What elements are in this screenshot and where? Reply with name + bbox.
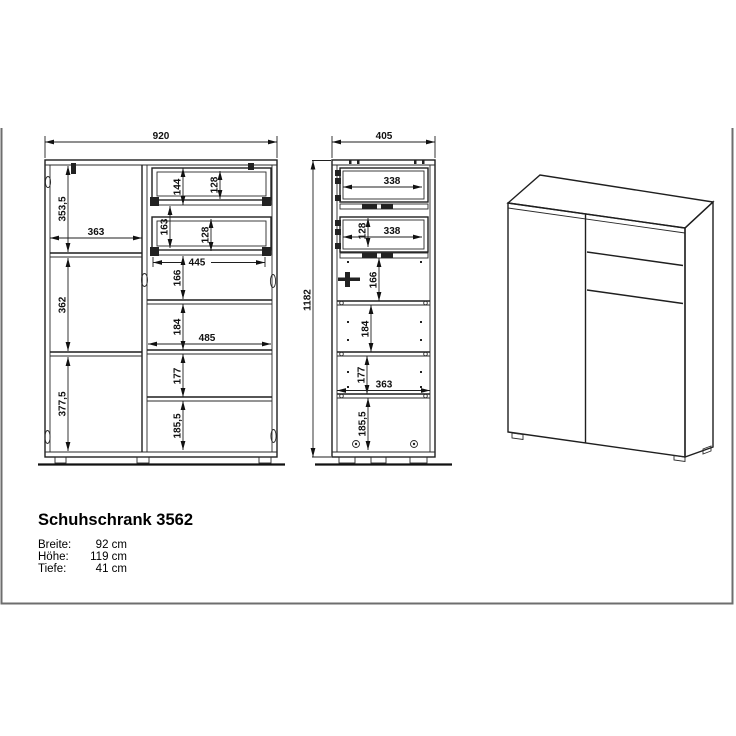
technical-drawing: 920 353,5 363 362 377,5 144 128 163 xyxy=(0,0,736,736)
screw-icon xyxy=(353,441,418,448)
dim-label: 177 xyxy=(173,367,184,384)
dim-side-shelf-gap-2: 177 xyxy=(357,356,368,394)
dim-side-overall-height: 1182 xyxy=(303,161,332,458)
dim-label: 1182 xyxy=(303,289,314,311)
dim-front-left-width: 363 xyxy=(50,227,142,238)
dim-label: 353,5 xyxy=(58,196,69,221)
dim-label: 485 xyxy=(199,333,216,344)
dim-front-shelf-gap-2: 177 xyxy=(173,354,184,397)
dim-side-drawer2-depth: 338 xyxy=(343,226,422,237)
dim-label: 184 xyxy=(361,320,372,337)
dim-side-below-drawers: 166 xyxy=(369,258,380,301)
dim-label: 128 xyxy=(201,226,212,243)
spec-list: Breite:92 cm Höhe:119 cm Tiefe:41 cm xyxy=(38,539,193,576)
dim-front-right-width: 485 xyxy=(148,333,271,344)
front-view: 920 353,5 363 362 377,5 144 128 163 xyxy=(38,131,285,465)
dim-front-shelf-gap-1: 184 xyxy=(173,304,184,350)
dim-front-left-top: 353,5 xyxy=(58,166,69,252)
spec-label: Höhe: xyxy=(38,551,85,563)
perspective-view xyxy=(508,175,713,462)
drawer-2-side xyxy=(335,217,428,258)
spec-row-height: Höhe:119 cm xyxy=(38,551,193,563)
dim-front-drawer2-height: 163 xyxy=(160,206,171,248)
dim-label: 405 xyxy=(376,131,393,142)
dim-side-drawer1-depth: 338 xyxy=(343,176,422,187)
bracket-icon xyxy=(71,163,76,174)
bracket-icon xyxy=(248,163,254,170)
product-title: Schuhschrank 3562 xyxy=(38,511,193,530)
dim-label: 177 xyxy=(357,366,368,383)
dim-label: 166 xyxy=(369,271,380,288)
dim-front-left-bottom: 377,5 xyxy=(58,357,69,451)
dim-label: 185,5 xyxy=(358,411,369,436)
handle-icon xyxy=(270,275,275,288)
spec-label: Tiefe: xyxy=(38,563,85,575)
dim-label: 184 xyxy=(173,318,184,335)
side-view: 405 1182 338 128 338 166 184 xyxy=(303,131,453,465)
spec-value: 119 cm xyxy=(85,551,127,563)
dim-label: 363 xyxy=(88,227,105,238)
dim-label: 920 xyxy=(153,131,170,142)
dim-label: 163 xyxy=(160,218,171,235)
dim-label: 144 xyxy=(173,178,184,195)
dim-side-drawer2-inner: 128 xyxy=(358,218,369,247)
handle-icon xyxy=(338,272,360,287)
dim-front-shelf-gap-3: 185,5 xyxy=(173,401,184,450)
spec-value: 41 cm xyxy=(85,563,127,575)
dim-side-overall-depth: 405 xyxy=(332,131,435,158)
title-block: Schuhschrank 3562 Breite:92 cm Höhe:119 … xyxy=(38,511,193,576)
dim-label: 166 xyxy=(173,269,184,286)
dim-front-left-mid: 362 xyxy=(58,258,69,351)
dim-front-drawer1-inner: 128 xyxy=(210,171,221,199)
spec-label: Breite: xyxy=(38,539,85,551)
dim-front-drawers-width: 445 xyxy=(153,256,265,269)
dim-label: 338 xyxy=(384,176,401,187)
dim-label: 338 xyxy=(384,226,401,237)
dim-label: 128 xyxy=(210,176,221,193)
drawer-1-side xyxy=(335,168,428,209)
dim-label: 362 xyxy=(58,296,69,313)
spec-value: 92 cm xyxy=(85,539,127,551)
dim-side-inner-depth: 363 xyxy=(337,380,430,391)
dim-label: 377,5 xyxy=(58,391,69,416)
dim-label: 445 xyxy=(189,258,206,269)
dim-label: 363 xyxy=(376,380,393,391)
dim-label: 185,5 xyxy=(173,413,184,438)
dim-side-shelf-gap-1: 184 xyxy=(361,305,372,352)
page: 920 353,5 363 362 377,5 144 128 163 xyxy=(0,0,736,736)
dim-front-overall-width: 920 xyxy=(45,131,277,158)
spec-row-width: Breite:92 cm xyxy=(38,539,193,551)
spec-row-depth: Tiefe:41 cm xyxy=(38,563,193,575)
